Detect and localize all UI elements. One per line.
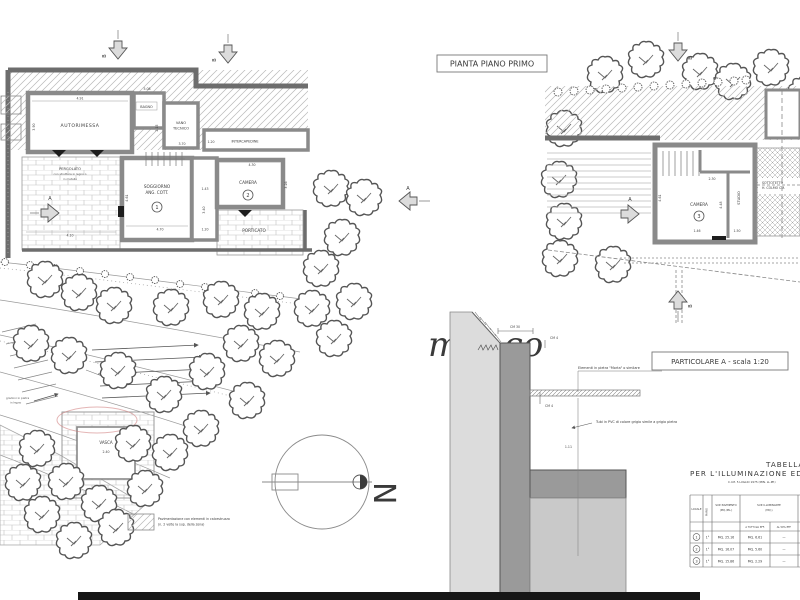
dim-label: 1.43 — [201, 187, 208, 191]
dim-label: 4.48 — [719, 201, 723, 208]
table-grid — [690, 495, 800, 567]
dim-label: 5.08 — [143, 87, 150, 91]
tree-icon — [316, 320, 351, 356]
sheet-bottom-bar — [78, 592, 700, 600]
north-compass: N — [262, 435, 401, 529]
tree-icon — [346, 179, 381, 215]
cell-locale: 3 — [695, 560, 697, 564]
label-camera3-num: 3 — [697, 214, 700, 220]
detail-title-box: PARTICOLARE A - scala 1:20 — [652, 352, 788, 370]
label-soggiorno-num: 1 — [155, 205, 158, 211]
exterior-stair-block — [1, 124, 21, 140]
door-mark — [118, 206, 124, 217]
steps-note-1: gradoni in pietra — [6, 396, 30, 400]
cell-pavimento: MQ. 16.07 — [718, 548, 734, 552]
plan-title-box: PIANTA PIANO PRIMO — [437, 55, 547, 72]
section-letter-b: B — [212, 58, 218, 62]
tree-icon — [294, 290, 329, 326]
tree-icon — [303, 250, 338, 286]
label-intercapedine: INTERCAPEDINE — [231, 140, 258, 144]
tree-icon — [189, 353, 224, 389]
detail-title: PARTICOLARE A - scala 1:20 — [671, 358, 769, 366]
label-pergolato-3: in metallo — [63, 177, 77, 181]
tree-icon — [313, 170, 348, 206]
tree-icon — [324, 219, 359, 255]
room-bagno — [134, 93, 164, 128]
label-camera3: CAMERA — [690, 202, 708, 207]
dim-label: 4.61 — [125, 194, 129, 201]
dim-label: 4.10 — [66, 234, 73, 238]
th-pavimento-1: SUP. PAVIMENTO — [715, 503, 736, 507]
section-arrow-b — [109, 41, 127, 59]
legend: Pavimentazione con elementi in calcestru… — [128, 514, 230, 530]
tree-icon — [56, 522, 91, 558]
cell-illuminante: MQ. 2.29 — [748, 560, 762, 564]
cell-extra: — — [782, 536, 786, 540]
tree-icon — [244, 293, 279, 329]
tree-icon — [100, 352, 135, 388]
paving-strip — [530, 390, 640, 396]
dim-label: 3.40 — [202, 206, 206, 213]
hill-hatch-right — [545, 86, 800, 140]
label-porticato: PORTICATO — [242, 228, 266, 233]
table-title-2: PER L'ILLUMINAZIONE ED AERAZIONE — [690, 469, 800, 478]
dim-label: 1.20 — [207, 140, 214, 144]
label-pergolato-2: con struttura in legno o — [54, 172, 87, 176]
label-autorimessa: AUTORIMESSA — [61, 123, 100, 129]
dim-label: 2.30 — [708, 177, 715, 181]
section-letter-b: B — [102, 54, 108, 58]
dim-label: 3.70 — [178, 142, 185, 146]
dim-label: 4.30 — [248, 163, 255, 167]
section-arrow-b — [669, 291, 687, 309]
dim-label: 1.11 — [565, 445, 572, 449]
label-studio: STUDIO — [737, 191, 741, 205]
illumination-table: TABELLA PER L'ILLUMINAZIONE ED AERAZIONE… — [690, 460, 800, 567]
cell-illuminante: MQ. 6.61 — [748, 536, 762, 540]
dim-label: 4.70 — [156, 228, 163, 232]
section-letter-b: B — [688, 304, 694, 308]
right-plan: CAMERA 3 STUDIO SOTTOTETTO H. COLMO CM. … — [545, 76, 800, 325]
drawing-sheet: mu, co AUTORIMESSA BAGNO VA — [0, 0, 800, 600]
dim-label: 1.20 — [201, 228, 208, 232]
section-arrow-a — [399, 192, 417, 210]
label-camera2: CAMERA — [239, 180, 257, 185]
tree-icon — [127, 470, 162, 506]
table-subtitle: C.I.M. 5 LUGLIO 1975 (MIN. LL.PP.) — [728, 480, 776, 484]
deck-area — [547, 150, 651, 214]
edge-structure — [766, 90, 800, 138]
cell-piano: 1° — [706, 536, 710, 540]
tree-icon — [753, 49, 788, 85]
label-bagno: BAGNO — [140, 105, 153, 109]
label-vasca: VASCA — [99, 440, 113, 445]
cell-pavimento: MQ. 25.16 — [718, 536, 734, 540]
section-letter-a: A — [628, 197, 632, 203]
tree-icon — [24, 496, 59, 532]
th-sub-1: A TUTTI GLI EFF. — [745, 526, 764, 529]
label-pergolato-1: PERGOLATO — [59, 167, 81, 171]
detail-section: CM 30 CM 4 CM 4 1.11 Elementi in pietra … — [450, 312, 677, 600]
label-vano-1: VANO — [176, 121, 186, 125]
dim-label: 1.46 — [693, 229, 700, 233]
label-camera2-num: 2 — [246, 193, 249, 199]
cell-locale: 2 — [695, 548, 697, 552]
dim-label: CM 4 — [545, 404, 553, 408]
tree-icon — [146, 376, 181, 412]
steps-note-2: in legno — [10, 401, 21, 405]
tree-icon — [115, 425, 150, 461]
th-illuminante-1: SUP. ILLUMINANTE — [757, 503, 781, 507]
dim-label: 2.15 — [155, 124, 159, 131]
detail-note-2: Tubi in PVC di colore grigio simile a gr… — [595, 420, 677, 424]
tree-icon — [595, 246, 630, 282]
tree-icon — [542, 240, 577, 276]
compass-pointer — [360, 475, 367, 489]
tree-icon — [13, 325, 48, 361]
tree-icon — [61, 274, 96, 310]
room-autorimessa — [28, 93, 132, 152]
tree-icon — [27, 261, 62, 297]
dim-label: 1.50 — [733, 229, 740, 233]
plan-title: PIANTA PIANO PRIMO — [450, 60, 534, 69]
tree-icon — [223, 325, 258, 361]
cell-locale: 1 — [695, 536, 697, 540]
tree-icon — [183, 410, 218, 446]
table-title-1: TABELLA — [765, 460, 800, 469]
cell-piano: 1° — [706, 560, 710, 564]
legend-line-1: Pavimentazione con elementi in calcestru… — [158, 517, 230, 521]
dim-label: 3.26 — [284, 181, 288, 188]
th-pavimento-2: (MQ./ML.) — [720, 508, 733, 512]
section-arrow-b — [669, 43, 687, 61]
tree-icon — [153, 289, 188, 325]
dim-label: CM 4 — [550, 336, 558, 340]
th-sub-2: AL 50% EFF. — [777, 526, 792, 529]
dim-label: 2.40 — [102, 450, 109, 454]
section-letter-a: A — [406, 186, 410, 192]
tree-icon — [336, 283, 371, 319]
cell-extra: — — [782, 560, 786, 564]
tree-icon — [96, 287, 131, 323]
label-soggiorno-1: SOGGIORNO — [144, 184, 171, 189]
exterior-stair-block — [1, 96, 21, 114]
th-locale: LOCALE — [691, 507, 701, 511]
tree-icon — [259, 340, 294, 376]
cell-extra: — — [782, 548, 786, 552]
legend-swatch — [128, 514, 154, 530]
section-letter-a: A — [48, 196, 52, 202]
detail-note-1: Elementi in pietra "Morta" o similare — [578, 366, 640, 370]
tree-icon — [152, 434, 187, 470]
section-arrow-b — [219, 45, 237, 63]
dim-label: 4.91 — [76, 97, 83, 101]
tree-icon — [51, 337, 86, 373]
left-plan: AUTORIMESSA BAGNO VANO TECNICO INTERCAPE… — [1, 70, 312, 258]
dim-label: 4.61 — [658, 194, 662, 201]
cell-piano: 1° — [706, 548, 710, 552]
steps-note-arrow — [34, 394, 58, 401]
legend-line-2: (n. 2 volte la sup. della zona) — [158, 523, 204, 527]
tree-icon — [203, 281, 238, 317]
cell-illuminante: MQ. 5.60 — [748, 548, 762, 552]
site-plan-drawing: mu, co AUTORIMESSA BAGNO VA — [0, 0, 800, 600]
terrain-mass — [450, 312, 500, 600]
tree-icon — [229, 382, 264, 418]
tree-icon — [19, 430, 54, 466]
tree-icon — [628, 41, 663, 77]
wall-section — [500, 343, 530, 600]
th-piano: PIANO — [705, 508, 709, 516]
label-vano-2: TECNICO — [172, 127, 189, 131]
boundary-dashes — [548, 250, 800, 325]
th-illuminante-2: (MQ.) — [765, 508, 772, 512]
north-label: N — [366, 482, 401, 504]
cell-pavimento: MQ. 15.86 — [718, 560, 734, 564]
dim-label: 3.90 — [32, 123, 36, 130]
dim-label: CM 30 — [510, 325, 520, 329]
section-letter-b: B — [688, 56, 694, 60]
label-sottotetto-1: SOTTOTETTO — [762, 181, 784, 185]
tree-icon — [48, 463, 83, 499]
tree-icon — [5, 464, 40, 500]
label-soggiorno-2: ANG. COTT. — [146, 190, 169, 195]
